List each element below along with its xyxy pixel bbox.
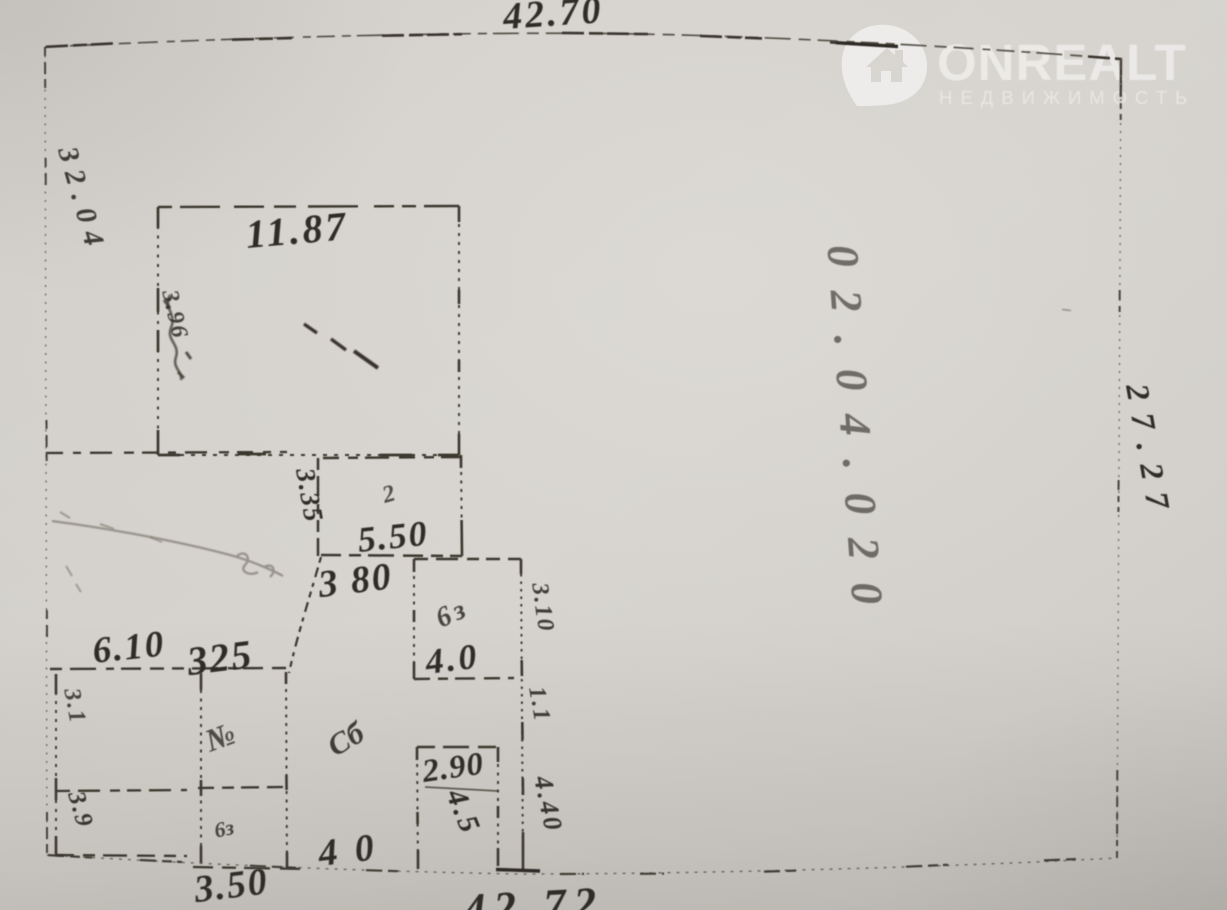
svg-text:НЕДВИЖИМОСТЬ: НЕДВИЖИМОСТЬ xyxy=(939,87,1195,108)
svg-text:6.10: 6.10 xyxy=(91,624,168,672)
svg-text:4 0: 4 0 xyxy=(315,826,380,875)
svg-text:4.0: 4.0 xyxy=(422,636,481,682)
svg-text:3.50: 3.50 xyxy=(191,860,271,910)
svg-text:325: 325 xyxy=(184,631,256,684)
svg-text:ONREALT: ONREALT xyxy=(937,34,1187,91)
svg-text:11.87: 11.87 xyxy=(244,203,350,257)
svg-text:5.50: 5.50 xyxy=(356,513,431,560)
